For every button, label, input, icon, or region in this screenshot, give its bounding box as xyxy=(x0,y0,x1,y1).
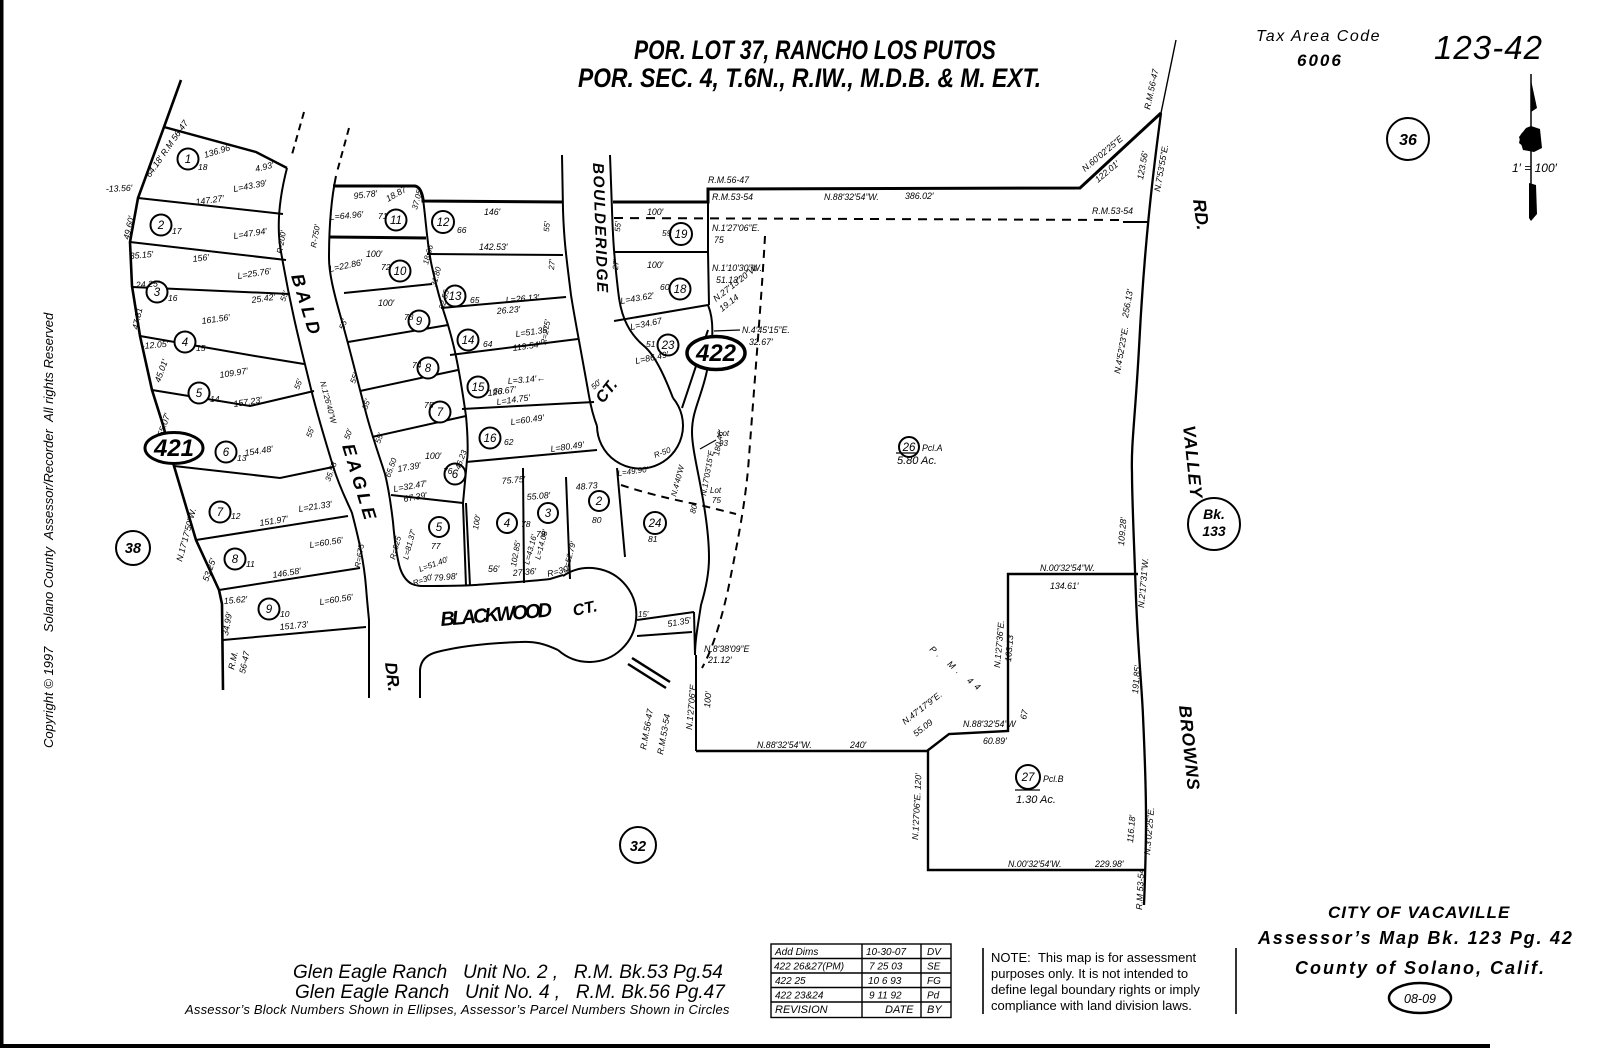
svg-text:19: 19 xyxy=(675,229,688,241)
svg-text:7: 7 xyxy=(217,507,224,519)
svg-text:73: 73 xyxy=(404,312,414,322)
svg-text:15: 15 xyxy=(472,382,485,394)
svg-text:BY: BY xyxy=(927,1004,942,1016)
svg-text:DV: DV xyxy=(927,947,942,958)
svg-text:14: 14 xyxy=(462,335,475,347)
svg-text:78: 78 xyxy=(521,519,531,529)
svg-text:FG: FG xyxy=(927,976,941,987)
svg-text:26: 26 xyxy=(902,442,916,454)
svg-text:55′: 55′ xyxy=(613,221,623,233)
svg-text:CITY OF VACAVILLE: CITY OF VACAVILLE xyxy=(1328,903,1510,922)
svg-text:08-09: 08-09 xyxy=(1404,992,1436,1006)
svg-text:5.80 Ac.: 5.80 Ac. xyxy=(897,455,937,467)
svg-text:11: 11 xyxy=(246,559,255,569)
svg-text:7 25 03: 7 25 03 xyxy=(869,962,903,973)
svg-text:POR. SEC. 4, T.6N., R.IW., M.D: POR. SEC. 4, T.6N., R.IW., M.D.B. & M. E… xyxy=(578,63,1041,93)
svg-text:422 26&27(PM): 422 26&27(PM) xyxy=(774,962,844,973)
svg-text:5: 5 xyxy=(196,388,203,400)
svg-text:100′: 100′ xyxy=(647,207,664,217)
svg-text:11: 11 xyxy=(390,215,402,227)
svg-text:18: 18 xyxy=(674,284,687,296)
svg-text:R.M.53-54: R.M.53-54 xyxy=(712,192,753,202)
svg-text:71: 71 xyxy=(378,211,388,221)
svg-text:66: 66 xyxy=(457,225,467,235)
svg-text:N.00′32′54”W.: N.00′32′54”W. xyxy=(1040,563,1095,573)
svg-text:422 25: 422 25 xyxy=(775,976,806,987)
svg-text:229.98′: 229.98′ xyxy=(1094,859,1124,869)
svg-text:17: 17 xyxy=(172,226,182,236)
svg-text:100′: 100′ xyxy=(378,298,395,308)
svg-text:100′: 100′ xyxy=(702,691,713,708)
svg-text:12: 12 xyxy=(231,511,241,521)
svg-text:2: 2 xyxy=(595,496,603,508)
svg-text:Bk.: Bk. xyxy=(1203,506,1225,522)
svg-text:DATE: DATE xyxy=(885,1004,914,1016)
svg-text:N.88′32′54”W.: N.88′32′54”W. xyxy=(824,192,879,202)
svg-text:Copyright © 1997 Solano Cou: Copyright © 1997 Solano County Assessor/… xyxy=(41,312,56,748)
svg-text:12: 12 xyxy=(437,217,450,229)
svg-text:RD.: RD. xyxy=(1189,198,1213,231)
svg-text:R.M.56-47: R.M.56-47 xyxy=(708,175,750,185)
svg-text:15: 15 xyxy=(196,343,206,353)
svg-text:8: 8 xyxy=(232,554,239,566)
svg-text:3: 3 xyxy=(154,287,161,299)
svg-text:compliance with land division: compliance with land division laws. xyxy=(991,998,1192,1013)
svg-text:N.00′32′54′W.: N.00′32′54′W. xyxy=(1008,859,1062,869)
svg-text:8: 8 xyxy=(425,363,432,375)
svg-text:1′ = 100′: 1′ = 100′ xyxy=(1512,161,1558,175)
svg-text:27′: 27′ xyxy=(611,259,621,272)
svg-text:16: 16 xyxy=(484,433,497,445)
svg-text:56′: 56′ xyxy=(488,564,500,574)
svg-text:Lot: Lot xyxy=(710,486,722,495)
svg-text:81: 81 xyxy=(648,534,658,544)
svg-text:55.08′: 55.08′ xyxy=(526,490,551,502)
svg-text:N.88′32′54”W: N.88′32′54”W xyxy=(963,719,1016,729)
svg-text:Pcl.B: Pcl.B xyxy=(1043,774,1064,784)
svg-text:Assessor’s Block Numbers Shown: Assessor’s Block Numbers Shown in Ellips… xyxy=(184,1002,730,1017)
svg-text:16: 16 xyxy=(168,293,178,303)
svg-text:County of Solano, Calif.: County of Solano, Calif. xyxy=(1295,958,1546,978)
svg-text:133: 133 xyxy=(1202,523,1226,539)
svg-text:75: 75 xyxy=(714,235,724,245)
svg-text:48.73: 48.73 xyxy=(575,480,598,492)
svg-text:156′: 156′ xyxy=(192,252,210,264)
svg-text:36: 36 xyxy=(1399,132,1417,149)
svg-text:386.02′: 386.02′ xyxy=(905,191,934,201)
svg-text:1.30 Ac.: 1.30 Ac. xyxy=(1016,794,1056,806)
svg-text:N.4′45′15”E.: N.4′45′15”E. xyxy=(742,325,790,335)
svg-text:32.67′: 32.67′ xyxy=(749,337,773,347)
svg-text:24: 24 xyxy=(648,518,662,530)
svg-text:142.53′: 142.53′ xyxy=(479,242,508,252)
svg-text:9 11 92: 9 11 92 xyxy=(869,991,902,1002)
svg-text:5: 5 xyxy=(436,522,443,534)
svg-text:10-30-07: 10-30-07 xyxy=(866,947,906,958)
svg-text:4: 4 xyxy=(504,518,510,530)
svg-text:62: 62 xyxy=(504,437,514,447)
svg-text:55′: 55′ xyxy=(542,221,552,233)
svg-text:134.61′: 134.61′ xyxy=(1050,581,1079,591)
svg-text:REVISION: REVISION xyxy=(775,1004,828,1016)
svg-text:Assessor’s Map Bk. 123 Pg. 42: Assessor’s Map Bk. 123 Pg. 42 xyxy=(1257,928,1574,948)
svg-text:1: 1 xyxy=(185,154,191,166)
svg-text:SE: SE xyxy=(927,962,941,973)
svg-text:38: 38 xyxy=(125,541,142,557)
svg-text:Tax Area Code: Tax Area Code xyxy=(1256,28,1381,45)
svg-text:422: 422 xyxy=(695,340,737,367)
svg-text:R.M.53-54: R.M.53-54 xyxy=(1092,206,1133,216)
svg-text:6: 6 xyxy=(452,469,459,481)
svg-text:100′: 100′ xyxy=(425,451,442,461)
svg-text:75: 75 xyxy=(424,400,434,410)
svg-text:18: 18 xyxy=(198,162,208,172)
svg-text:10: 10 xyxy=(280,609,290,619)
svg-text:Add Dims: Add Dims xyxy=(774,947,818,958)
svg-text:100′: 100′ xyxy=(647,260,664,270)
svg-text:N.1′27′06”E.: N.1′27′06”E. xyxy=(712,223,760,233)
svg-text:60: 60 xyxy=(660,282,670,292)
svg-text:24.25′: 24.25′ xyxy=(134,278,160,290)
svg-text:79.98′: 79.98′ xyxy=(433,571,458,583)
svg-text:2: 2 xyxy=(157,220,165,232)
svg-text:64: 64 xyxy=(483,339,493,349)
svg-text:define legal boundary rights o: define legal boundary rights or imply xyxy=(991,982,1200,997)
svg-text:Glen Eagle Ranch Unit No. 4: Glen Eagle Ranch Unit No. 4 , R.M. Bk.56… xyxy=(295,982,726,1003)
svg-text:15′: 15′ xyxy=(638,610,649,619)
svg-text:7: 7 xyxy=(437,407,444,419)
svg-text:N.88′32′54”W.: N.88′32′54”W. xyxy=(757,740,812,750)
svg-text:65: 65 xyxy=(470,295,480,305)
svg-text:146′: 146′ xyxy=(484,207,501,217)
svg-text:422 23&24: 422 23&24 xyxy=(775,991,824,1002)
svg-text:123-42: 123-42 xyxy=(1434,29,1542,66)
svg-text:76: 76 xyxy=(443,466,453,476)
svg-text:-13.56′: -13.56′ xyxy=(106,183,133,194)
svg-text:75.75′: 75.75′ xyxy=(501,474,526,486)
svg-text:100′: 100′ xyxy=(366,249,383,259)
svg-text:240′: 240′ xyxy=(849,740,867,750)
svg-text:77: 77 xyxy=(431,541,441,551)
svg-text:POR. LOT 37, RANCHO LOS PUTOS: POR. LOT 37, RANCHO LOS PUTOS xyxy=(634,36,996,66)
svg-text:DR.: DR. xyxy=(381,661,403,692)
svg-text:14: 14 xyxy=(210,394,220,404)
svg-text:Pd: Pd xyxy=(927,991,940,1002)
svg-text:3: 3 xyxy=(545,508,552,520)
svg-text:27′: 27′ xyxy=(547,259,557,272)
svg-text:9: 9 xyxy=(416,316,423,328)
svg-text:4: 4 xyxy=(182,337,188,349)
svg-text:NOTE: This map is for assessm: NOTE: This map is for assessment xyxy=(991,950,1197,965)
svg-text:80: 80 xyxy=(592,515,602,525)
svg-text:Glen Eagle Ranch Unit No. 2: Glen Eagle Ranch Unit No. 2 , R.M. Bk.53… xyxy=(293,962,723,983)
svg-text:Pcl.A: Pcl.A xyxy=(922,443,943,453)
svg-text:35.15′: 35.15′ xyxy=(129,249,154,261)
svg-text:421: 421 xyxy=(153,435,194,462)
svg-text:60.89′: 60.89′ xyxy=(983,736,1007,746)
svg-text:21.12′: 21.12′ xyxy=(707,655,732,665)
svg-text:purposes only. It is not inten: purposes only. It is not intended to xyxy=(991,966,1188,981)
svg-text:6: 6 xyxy=(223,447,230,459)
svg-text:N.8′38′09”E: N.8′38′09”E xyxy=(704,644,749,654)
svg-text:32: 32 xyxy=(630,839,646,855)
svg-text:6006: 6006 xyxy=(1297,51,1343,70)
svg-text:15.62′: 15.62′ xyxy=(223,594,248,606)
svg-text:59: 59 xyxy=(662,228,672,238)
svg-text:10: 10 xyxy=(394,266,407,278)
svg-text:74: 74 xyxy=(412,360,422,370)
svg-text:72: 72 xyxy=(381,262,391,272)
svg-text:51: 51 xyxy=(646,339,656,349)
svg-text:75: 75 xyxy=(712,496,721,505)
svg-text:10 6 93: 10 6 93 xyxy=(868,976,902,987)
svg-text:9: 9 xyxy=(266,604,273,616)
svg-text:27: 27 xyxy=(1021,772,1035,784)
